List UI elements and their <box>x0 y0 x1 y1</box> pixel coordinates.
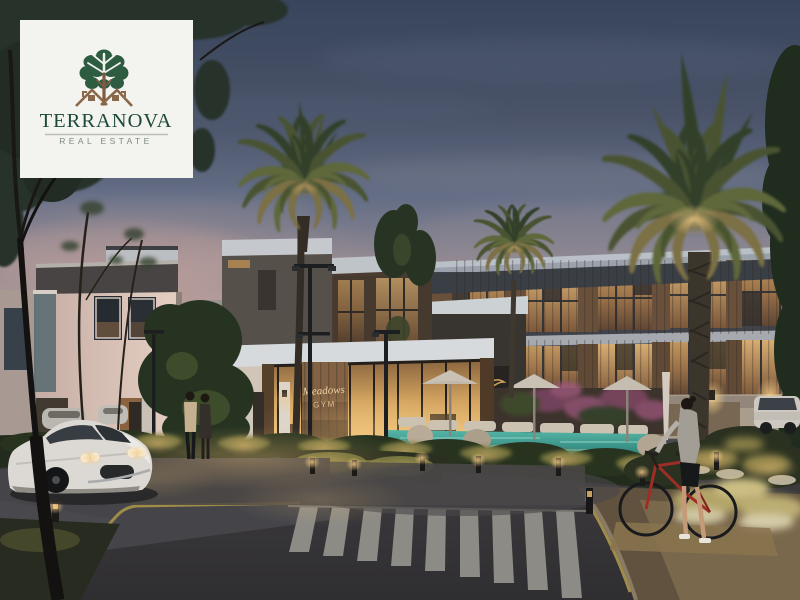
svg-text:TERRANOVA: TERRANOVA <box>40 110 173 132</box>
svg-text:REAL ESTATE: REAL ESTATE <box>59 136 152 146</box>
